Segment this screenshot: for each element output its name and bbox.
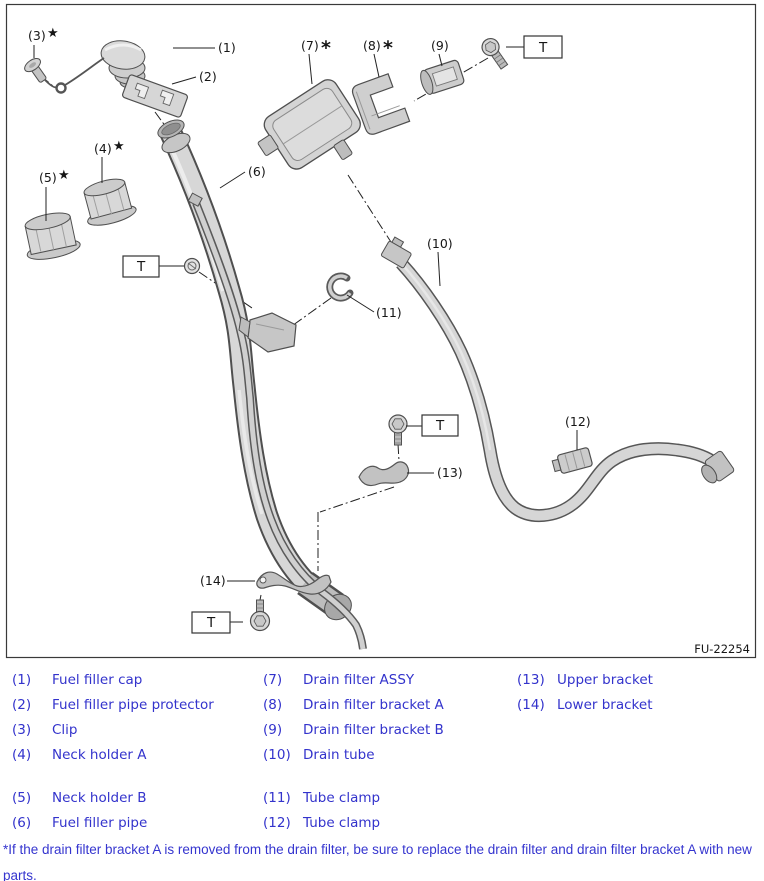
torque-symbol-box: T (192, 612, 230, 633)
callout-14: (14) (200, 573, 226, 588)
legend-item-number: (2) (12, 693, 52, 718)
legend-item-label: Fuel filler pipe protector (52, 693, 214, 718)
legend-item-number: (11) (263, 786, 303, 811)
callout-7: (7) (301, 38, 319, 53)
legend-item-6: (6) Fuel filler pipe (12, 811, 262, 836)
legend-item-5: (5) Neck holder B (12, 786, 262, 811)
callout-8: (8) (363, 38, 381, 53)
torque-symbol: T (206, 615, 216, 631)
star-marker: ★ (47, 26, 59, 41)
callout-2: (2) (199, 69, 217, 84)
callout-10: (10) (427, 236, 453, 251)
legend-item-label: Drain filter bracket B (303, 718, 444, 743)
figure-code: FU-22254 (694, 642, 750, 656)
torque-symbol: T (136, 259, 146, 275)
grommet-icon (185, 259, 200, 274)
legend-item-8: (8) Drain filter bracket A (263, 693, 515, 718)
legend-item-9: (9) Drain filter bracket B (263, 718, 515, 743)
star-marker: ★ (113, 139, 125, 154)
legend-item-number: (4) (12, 743, 52, 768)
manual-page: T T T T (1) (2) (3) ★ (4) ★ (5) ★ (6) (7… (0, 0, 764, 881)
legend-column-3: (13) Upper bracket (14) Lower bracket (517, 663, 762, 718)
legend-item-label: Upper bracket (557, 668, 653, 693)
torque-symbol-box: T (422, 415, 458, 436)
callout-6: (6) (248, 164, 266, 179)
legend-item-number: (8) (263, 693, 303, 718)
legend-item-2: (2) Fuel filler pipe protector (12, 693, 262, 718)
footnote: *If the drain filter bracket A is remove… (3, 837, 760, 881)
torque-symbol: T (435, 418, 445, 434)
legend-item-number: (1) (12, 668, 52, 693)
legend-item-number: (6) (12, 811, 52, 836)
asterisk-marker: * (321, 37, 331, 59)
legend-column-1: (1) Fuel filler cap (2) Fuel filler pipe… (12, 663, 262, 836)
callout-12: (12) (565, 414, 591, 429)
torque-symbol-box: T (123, 256, 159, 277)
callout-5: (5) (39, 170, 57, 185)
legend-item-number: (9) (263, 718, 303, 743)
callout-4: (4) (94, 141, 112, 156)
callout-13: (13) (437, 465, 463, 480)
callout-9: (9) (431, 38, 449, 53)
legend-item-12: (12) Tube clamp (263, 811, 515, 836)
asterisk-marker: * (383, 37, 393, 59)
callout-1: (1) (218, 40, 236, 55)
legend-item-label: Fuel filler cap (52, 668, 142, 693)
torque-symbol-box: T (524, 36, 562, 58)
callout-11: (11) (376, 305, 402, 320)
legend-item-1: (1) Fuel filler cap (12, 668, 262, 693)
legend-item-14: (14) Lower bracket (517, 693, 762, 718)
legend-item-number: (12) (263, 811, 303, 836)
legend-item-number: (13) (517, 668, 557, 693)
legend-item-label: Clip (52, 718, 78, 743)
callout-3: (3) (28, 28, 46, 43)
legend-item-10: (10) Drain tube (263, 743, 515, 768)
legend-item-label: Fuel filler pipe (52, 811, 147, 836)
diagram-border (7, 5, 756, 658)
legend-item-label: Drain filter ASSY (303, 668, 414, 693)
legend-item-number: (3) (12, 718, 52, 743)
legend-item-label: Drain tube (303, 743, 375, 768)
legend-item-4: (4) Neck holder A (12, 743, 262, 768)
legend-item-number: (5) (12, 786, 52, 811)
legend-item-label: Neck holder A (52, 743, 146, 768)
legend-item-label: Drain filter bracket A (303, 693, 444, 718)
legend-item-label: Lower bracket (557, 693, 652, 718)
legend-item-number: (7) (263, 668, 303, 693)
legend-item-11: (11) Tube clamp (263, 786, 515, 811)
legend-item-7: (7) Drain filter ASSY (263, 668, 515, 693)
legend-item-label: Tube clamp (303, 786, 380, 811)
legend-item-label: Neck holder B (52, 786, 146, 811)
parts-diagram: T T T T (1) (2) (3) ★ (4) ★ (5) ★ (6) (7… (0, 0, 764, 662)
legend-item-label: Tube clamp (303, 811, 380, 836)
legend-item-13: (13) Upper bracket (517, 668, 762, 693)
legend-item-3: (3) Clip (12, 718, 262, 743)
legend-item-number: (14) (517, 693, 557, 718)
star-marker: ★ (58, 168, 70, 183)
torque-symbol: T (538, 40, 548, 56)
legend-column-2: (7) Drain filter ASSY (8) Drain filter b… (263, 663, 515, 836)
legend-item-number: (10) (263, 743, 303, 768)
